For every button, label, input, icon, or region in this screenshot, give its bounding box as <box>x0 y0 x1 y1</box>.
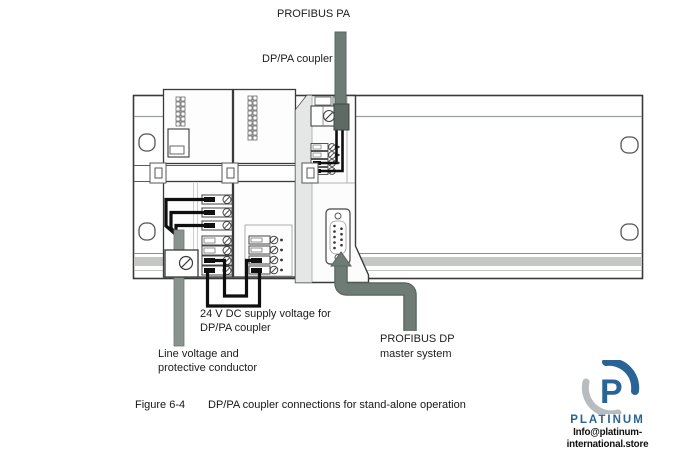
second-supply-module <box>234 90 296 278</box>
mains-terminal-block <box>202 195 232 230</box>
platinum-logo-icon: P <box>540 360 675 414</box>
label-profibus-dp-2: master system <box>380 348 452 361</box>
label-profibus-dp-1: PROFIBUS DP <box>380 333 455 346</box>
label-supply-line2: DP/PA coupler <box>200 322 271 335</box>
logo-email-text: Info@platinum-international.store <box>540 427 675 450</box>
label-profibus-pa: PROFIBUS PA <box>277 8 350 21</box>
label-supply-line1: 24 V DC supply voltage for <box>200 308 331 321</box>
rail-hole-icon <box>139 134 155 151</box>
page: PROFIBUS PA DP/PA coupler 24 V DC supply… <box>0 0 675 450</box>
line-voltage-cable <box>174 230 184 346</box>
label-dppa-coupler: DP/PA coupler <box>262 53 333 66</box>
logo-monogram: P <box>600 373 623 411</box>
figure-number: Figure 6-4 <box>135 399 185 411</box>
rail-hole-icon <box>139 223 155 240</box>
rail-hole-icon <box>621 137 638 153</box>
label-line-voltage-2: protective conductor <box>158 362 257 375</box>
cable-clamp <box>165 250 198 277</box>
logo-brand-text: PLATINUM <box>540 414 675 426</box>
figure-caption: DP/PA coupler connections for stand-alon… <box>208 399 466 411</box>
profibus-pa-cable <box>334 32 349 130</box>
rail-hole-icon <box>621 224 638 240</box>
pa-plug-icon <box>334 104 349 130</box>
platinum-watermark: P PLATINUM Info@platinum-international.s… <box>540 360 675 450</box>
label-line-voltage-1: Line voltage and <box>158 348 239 361</box>
